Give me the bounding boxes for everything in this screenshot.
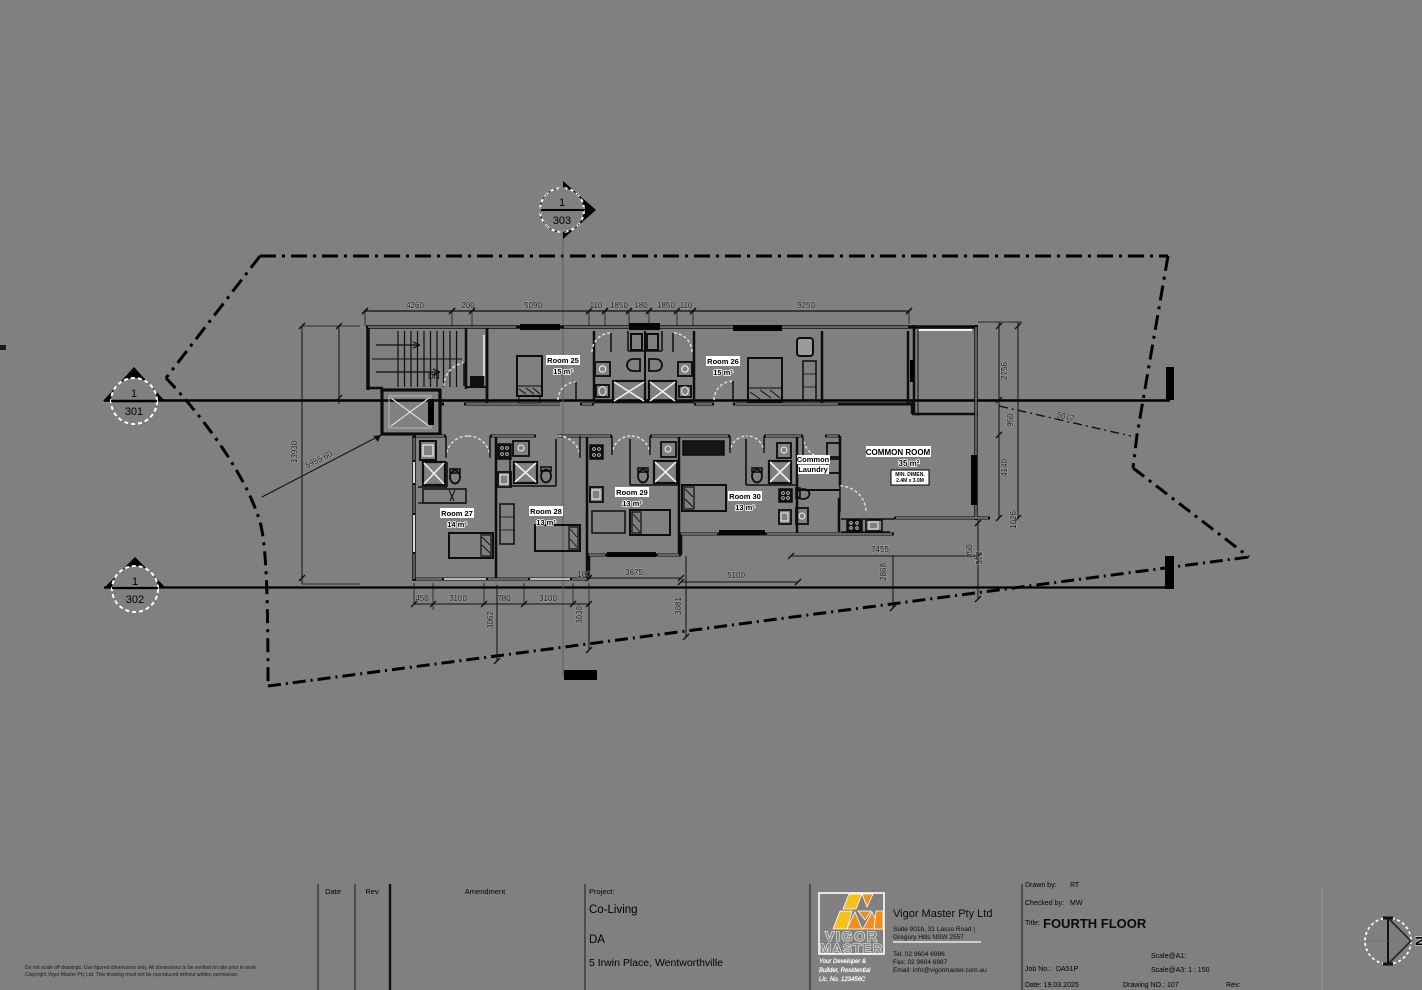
svg-text:1: 1 [131, 388, 137, 400]
svg-text:5 Irwin Place, Wentworthville: 5 Irwin Place, Wentworthville [589, 957, 723, 969]
svg-text:1026: 1026 [1009, 511, 1018, 529]
svg-text:200: 200 [461, 301, 475, 310]
svg-text:13930: 13930 [290, 440, 299, 463]
svg-text:572: 572 [975, 551, 984, 565]
svg-text:1850: 1850 [657, 301, 675, 310]
svg-text:302: 302 [126, 594, 144, 606]
svg-text:DA51P: DA51P [1056, 966, 1079, 973]
svg-text:Amendment: Amendment [465, 887, 506, 896]
svg-text:Date: Date [325, 887, 341, 896]
svg-text:Job No.:: Job No.: [1025, 966, 1051, 973]
svg-text:13 m²: 13 m² [735, 503, 755, 512]
svg-text:450: 450 [415, 594, 429, 603]
svg-text:Co-Living: Co-Living [589, 904, 638, 916]
svg-text:13 m²: 13 m² [622, 499, 642, 508]
svg-text:3081: 3081 [674, 597, 683, 615]
svg-text:301: 301 [125, 406, 143, 418]
svg-text:13 m²: 13 m² [536, 518, 556, 527]
svg-text:Gregory Hills NSW 2557: Gregory Hills NSW 2557 [893, 934, 964, 941]
svg-text:1850: 1850 [610, 301, 628, 310]
svg-text:3100: 3100 [449, 594, 467, 603]
svg-text:950: 950 [1006, 413, 1015, 427]
svg-text:FOURTH FLOOR: FOURTH FLOOR [1043, 916, 1147, 931]
svg-text:780: 780 [497, 594, 511, 603]
svg-text:DA: DA [589, 934, 605, 946]
svg-text:15 m²: 15 m² [553, 367, 573, 376]
svg-text:Room 25: Room 25 [547, 356, 579, 365]
svg-text:Do not scale off drawings. Use: Do not scale off drawings. Use figured d… [25, 965, 257, 971]
svg-text:Room 28: Room 28 [530, 507, 562, 516]
svg-text:2.4M x 3.0M: 2.4M x 3.0M [896, 478, 924, 484]
svg-text:1: 1 [132, 576, 138, 588]
svg-text:Room 29: Room 29 [616, 488, 648, 497]
svg-text:Builder, Residential: Builder, Residential [819, 968, 871, 974]
svg-text:Email: info@vigormaster.com.au: Email: info@vigormaster.com.au [893, 967, 987, 974]
svg-text:Drawn by:: Drawn by: [1025, 882, 1057, 889]
svg-text:35 m²: 35 m² [899, 459, 920, 468]
svg-text:9250: 9250 [797, 301, 815, 310]
svg-text:MASTER: MASTER [820, 941, 883, 956]
svg-text:Rev: Rev [365, 887, 379, 896]
svg-text:Room 26: Room 26 [707, 357, 739, 366]
svg-text:2756: 2756 [1000, 362, 1009, 380]
svg-text:110: 110 [680, 301, 693, 310]
svg-text:Rev:: Rev: [1226, 982, 1240, 989]
svg-text:Your Developer &: Your Developer & [819, 959, 866, 965]
svg-text:4140: 4140 [1000, 459, 1009, 477]
svg-text:303: 303 [553, 215, 571, 227]
svg-text:2868: 2868 [879, 563, 888, 581]
svg-text:DN: DN [428, 372, 440, 381]
svg-text:Fax: 02 9604 6987: Fax: 02 9604 6987 [893, 959, 948, 966]
svg-text:3100: 3100 [539, 594, 557, 603]
svg-text:Room 27: Room 27 [441, 509, 473, 518]
svg-text:5100: 5100 [727, 571, 745, 580]
svg-text:3062: 3062 [486, 611, 495, 629]
svg-text:MW: MW [1070, 900, 1083, 907]
svg-text:Room 30: Room 30 [729, 492, 761, 501]
svg-text:850: 850 [965, 544, 974, 558]
svg-text:Scale@A3: 1 : 150: Scale@A3: 1 : 150 [1151, 967, 1210, 974]
svg-text:5090: 5090 [524, 301, 542, 310]
svg-text:4260: 4260 [406, 301, 424, 310]
svg-text:Drawing NO.: 107: Drawing NO.: 107 [1123, 982, 1179, 989]
svg-text:180: 180 [634, 301, 648, 310]
svg-text:RT: RT [1070, 882, 1080, 889]
svg-text:7455: 7455 [871, 545, 889, 554]
svg-text:14 m²: 14 m² [447, 520, 467, 529]
svg-text:Scale@A1:: Scale@A1: [1151, 953, 1186, 960]
svg-text:Title:: Title: [1025, 920, 1040, 927]
svg-text:3675: 3675 [625, 568, 643, 577]
svg-text:COMMON ROOM: COMMON ROOM [866, 448, 931, 457]
svg-text:1: 1 [559, 197, 565, 209]
svg-text:Vigor Master Pty Ltd: Vigor Master Pty Ltd [893, 908, 992, 920]
svg-text:Checked by:: Checked by: [1025, 900, 1064, 907]
svg-text:Laundry: Laundry [798, 465, 828, 474]
svg-text:Date: 19.03.2025: Date: 19.03.2025 [1025, 982, 1079, 989]
svg-text:Suite 901b, 31 Lasso Road |: Suite 901b, 31 Lasso Road | [893, 926, 975, 933]
svg-text:Common: Common [797, 455, 830, 464]
svg-text:N: N [1412, 936, 1422, 946]
svg-text:3030: 3030 [575, 606, 584, 624]
svg-text:15 m²: 15 m² [713, 368, 733, 377]
svg-text:Tel: 02 9604 6986: Tel: 02 9604 6986 [893, 951, 945, 958]
svg-text:Project:: Project: [589, 887, 614, 896]
svg-text:110: 110 [590, 301, 603, 310]
svg-text:Lic. No. 123456C: Lic. No. 123456C [819, 977, 866, 983]
svg-text:Copyright Vigor Master Pty Ltd: Copyright Vigor Master Pty Ltd. This dra… [25, 972, 239, 978]
